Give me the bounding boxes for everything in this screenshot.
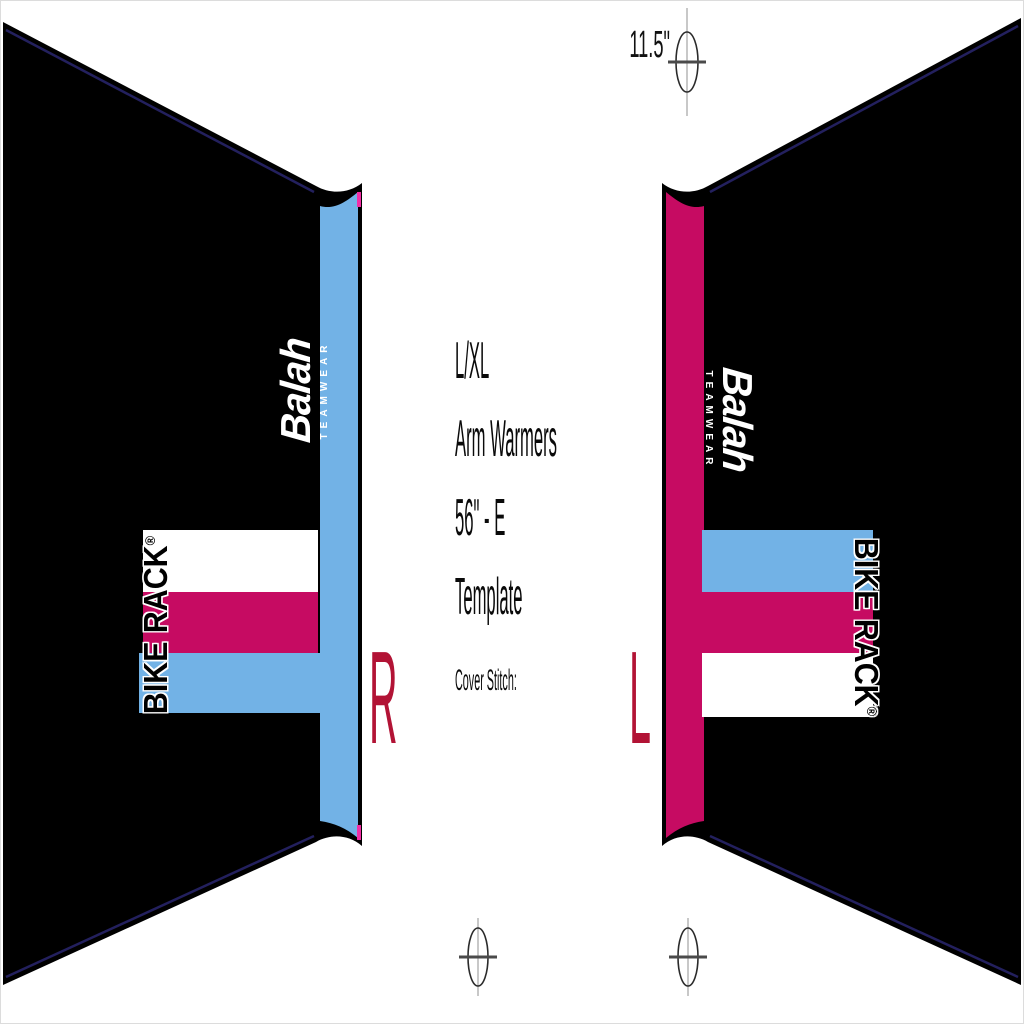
template-product-label: Arm Warmers bbox=[455, 412, 557, 467]
registration-mark-icon bbox=[668, 8, 706, 116]
left-sleeve-letter: L bbox=[629, 632, 651, 764]
template-size-label: L/XL bbox=[455, 334, 489, 389]
template-type-label: Template bbox=[455, 570, 523, 625]
sponsor-text-right-sleeve: BIKE RACK® bbox=[131, 524, 169, 726]
pattern-artwork bbox=[0, 0, 1024, 1024]
brand-logo-subtext: TEAMWEAR bbox=[704, 371, 715, 470]
left-sleeve-magenta-band bbox=[690, 592, 873, 653]
sponsor-text: BIKE RACK bbox=[137, 545, 174, 714]
registered-trademark-icon: ® bbox=[142, 536, 158, 546]
right-sleeve-top-notch bbox=[357, 192, 361, 207]
sponsor-text: BIKE RACK bbox=[848, 538, 885, 707]
registration-mark-icon bbox=[669, 918, 707, 996]
template-dimension-label: 56" - E bbox=[455, 491, 505, 546]
brand-logo-text: Balah bbox=[275, 336, 317, 444]
arm-warmer-template-page: 11.5" L/XL Arm Warmers 56" - E Template … bbox=[0, 0, 1024, 1024]
registered-trademark-icon: ® bbox=[864, 707, 880, 717]
right-sleeve-bottom-notch bbox=[357, 825, 361, 840]
brand-logo-left-sleeve: Balah TEAMWEAR bbox=[707, 300, 755, 540]
top-width-measurement: 11.5" bbox=[603, 24, 670, 67]
brand-logo-right-sleeve: Balah TEAMWEAR bbox=[278, 270, 326, 510]
cover-stitch-label: Cover Stitch: bbox=[455, 664, 517, 698]
left-sleeve-cuff-stripe bbox=[666, 192, 704, 838]
registration-mark-icon bbox=[459, 918, 497, 996]
right-sleeve-letter: R bbox=[369, 632, 398, 764]
brand-logo-text: Balah bbox=[717, 366, 759, 474]
brand-logo-subtext: TEAMWEAR bbox=[319, 341, 330, 440]
sponsor-text-left-sleeve: BIKE RACK® bbox=[853, 526, 891, 728]
